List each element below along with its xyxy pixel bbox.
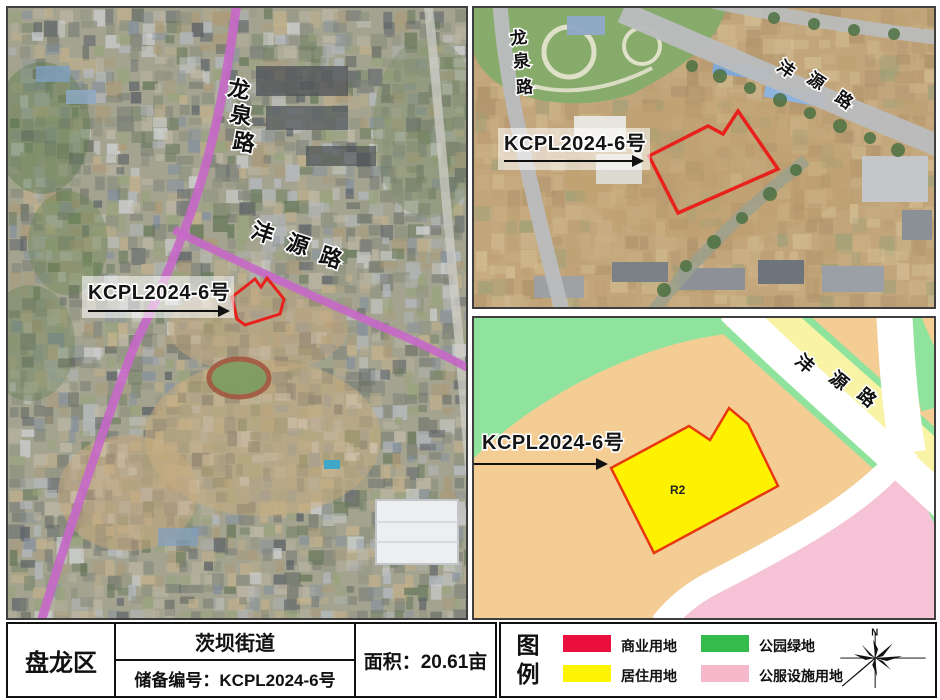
info-table: 盘龙区 茨坝街道 储备编号：KCPL2024-6号 面积：20.61亩 (6, 622, 497, 698)
parcel-label: KCPL2024-6号 (504, 132, 646, 155)
legend-label-park-green: 公园绿地 (759, 636, 815, 656)
legend-title-char: 例 (517, 660, 540, 689)
parcel-label: KCPL2024-6号 (88, 281, 230, 304)
street-and-reserve-cell: 茨坝街道 储备编号：KCPL2024-6号 (116, 624, 356, 696)
overview-map-canvas: 龙 泉 路 沣 源 路 KCPL2024-6号 (8, 8, 466, 618)
zoning-map: R2 沣 源 路 KCPL2024-6号 (472, 316, 936, 620)
legend-swatch-park-green (701, 635, 749, 652)
compass-star-white-half (842, 658, 875, 686)
reserve-label: 储备编号： (134, 666, 219, 691)
road-label-char: 龙 (226, 75, 252, 103)
zone-code: R2 (670, 483, 686, 497)
detail-map-canvas: 龙 泉 路 沣 源 路 KCPL2024-6号 (474, 8, 934, 307)
area-cell: 面积：20.61亩 (356, 624, 495, 696)
street-name: 茨坝街道 (116, 624, 354, 661)
road-label-char: 路 (515, 76, 534, 97)
road-label-char: 龙 (508, 27, 529, 49)
legend-swatch-commercial (563, 635, 611, 652)
legend-label-commercial: 商业用地 (621, 636, 677, 656)
legend-title-char: 图 (517, 631, 540, 660)
overview-satellite-map: 龙 泉 路 沣 源 路 KCPL2024-6号 (6, 6, 468, 620)
road-label-char: 泉 (511, 50, 532, 72)
overview-parcel-callout: KCPL2024-6号 (82, 276, 234, 318)
district-cell: 盘龙区 (8, 624, 116, 696)
reserve-number: 储备编号：KCPL2024-6号 (116, 661, 354, 696)
compass-rose: N (831, 626, 931, 692)
parcel-label: KCPL2024-6号 (482, 431, 624, 454)
area-label: 面积： (364, 647, 421, 674)
legend-swatch-public-facility (701, 665, 749, 682)
zoning-parcel-callout: KCPL2024-6号 (474, 431, 624, 470)
area-value: 20.61亩 (421, 647, 488, 674)
detail-satellite-map: 龙 泉 路 沣 源 路 KCPL2024-6号 (472, 6, 936, 309)
detail-parcel-callout: KCPL2024-6号 (498, 128, 650, 170)
compass-north-label: N (871, 628, 878, 639)
legend-swatch-residential (563, 665, 611, 682)
legend: 图 例 商业用地 居住用地 公园绿地 公服设施用地 N (499, 622, 937, 698)
land-parcel-sheet: 龙 泉 路 沣 源 路 KCPL2024-6号 (0, 0, 940, 700)
zoning-map-canvas: R2 沣 源 路 KCPL2024-6号 (474, 318, 934, 618)
reserve-value: KCPL2024-6号 (219, 666, 335, 691)
legend-label-residential: 居住用地 (621, 666, 677, 686)
legend-title: 图 例 (511, 628, 545, 692)
